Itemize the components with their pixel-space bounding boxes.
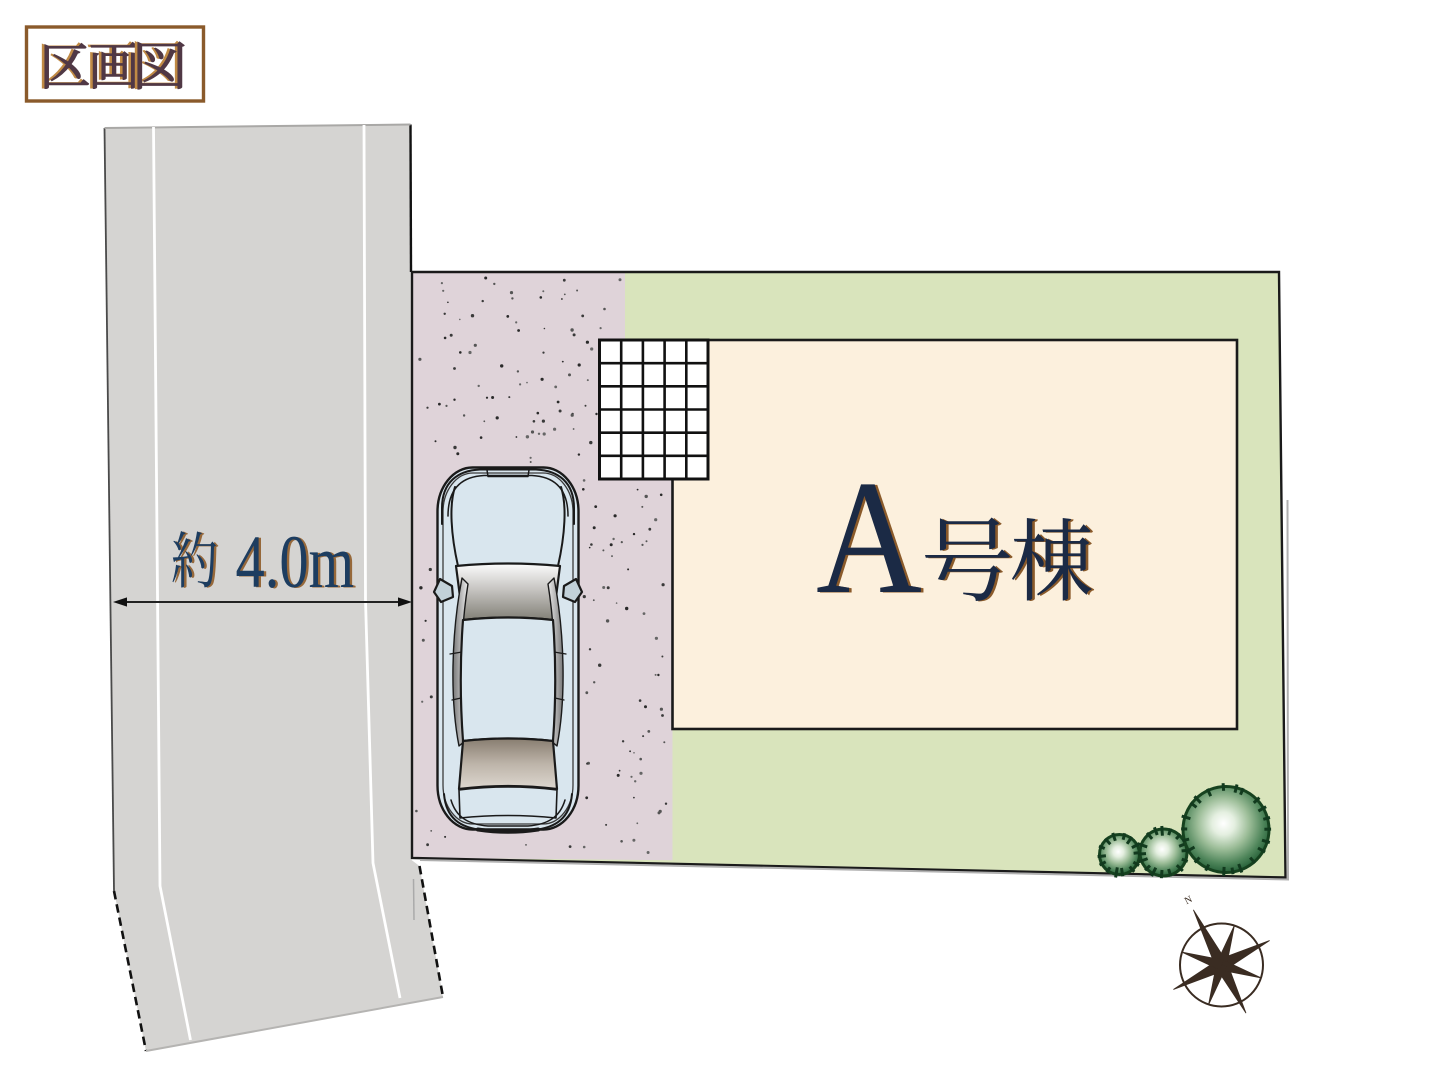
svg-text:4.0m: 4.0m <box>236 520 355 604</box>
svg-text:N: N <box>1183 894 1194 907</box>
svg-text:A: A <box>816 447 922 628</box>
